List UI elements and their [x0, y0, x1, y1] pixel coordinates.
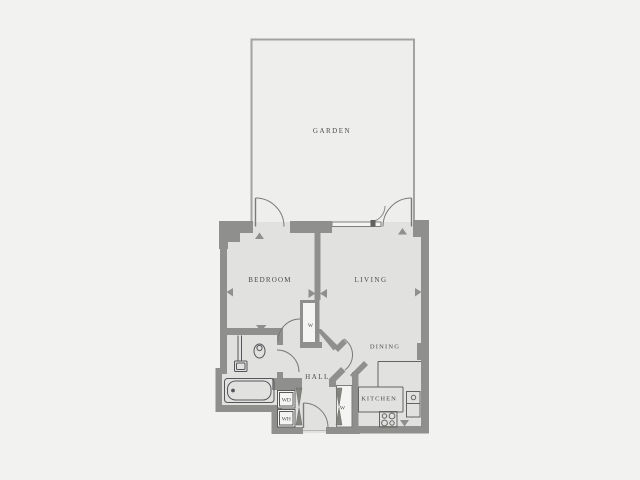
wall-top-center-pier [290, 221, 332, 233]
floorplan-svg: GARDEN BEDROOM LIVING DINING KITCHEN HAL… [0, 0, 640, 480]
wall-right [421, 220, 429, 433]
hall-label: HALL [305, 373, 330, 381]
window-latch-icon [371, 220, 376, 227]
wall-closet-left [300, 300, 303, 348]
wall-bedroom-living-divider [315, 228, 321, 300]
bedroom-label: BEDROOM [248, 276, 291, 284]
hall-wardrobe-label: W [308, 323, 314, 329]
garden-label: GARDEN [313, 127, 351, 135]
dining-label: DINING [370, 344, 400, 351]
wall-bedroom-bottom [220, 328, 277, 335]
bathtub-faucet-icon [232, 389, 235, 392]
entry-wardrobe-label: W [340, 406, 346, 412]
wall-right-bump [417, 343, 421, 360]
wall-closet-bottom [300, 342, 322, 348]
living-label: LIVING [354, 276, 387, 284]
wall-left [220, 233, 227, 372]
wall-topleft-block [219, 221, 253, 233]
washer-dryer-label: WD [282, 398, 291, 404]
flat-floor [216, 222, 430, 433]
wall-bathroom-right-upper [277, 328, 283, 345]
floorplan-canvas: GARDEN BEDROOM LIVING DINING KITCHEN HAL… [0, 0, 640, 480]
wall-hall-connector [329, 380, 336, 387]
kitchen-label: KITCHEN [361, 396, 397, 403]
wall-closet-right [315, 300, 320, 348]
water-heater-label: WH [282, 417, 291, 423]
wall-kitchen-hall [352, 372, 359, 428]
wall-bottom-left [272, 427, 304, 434]
